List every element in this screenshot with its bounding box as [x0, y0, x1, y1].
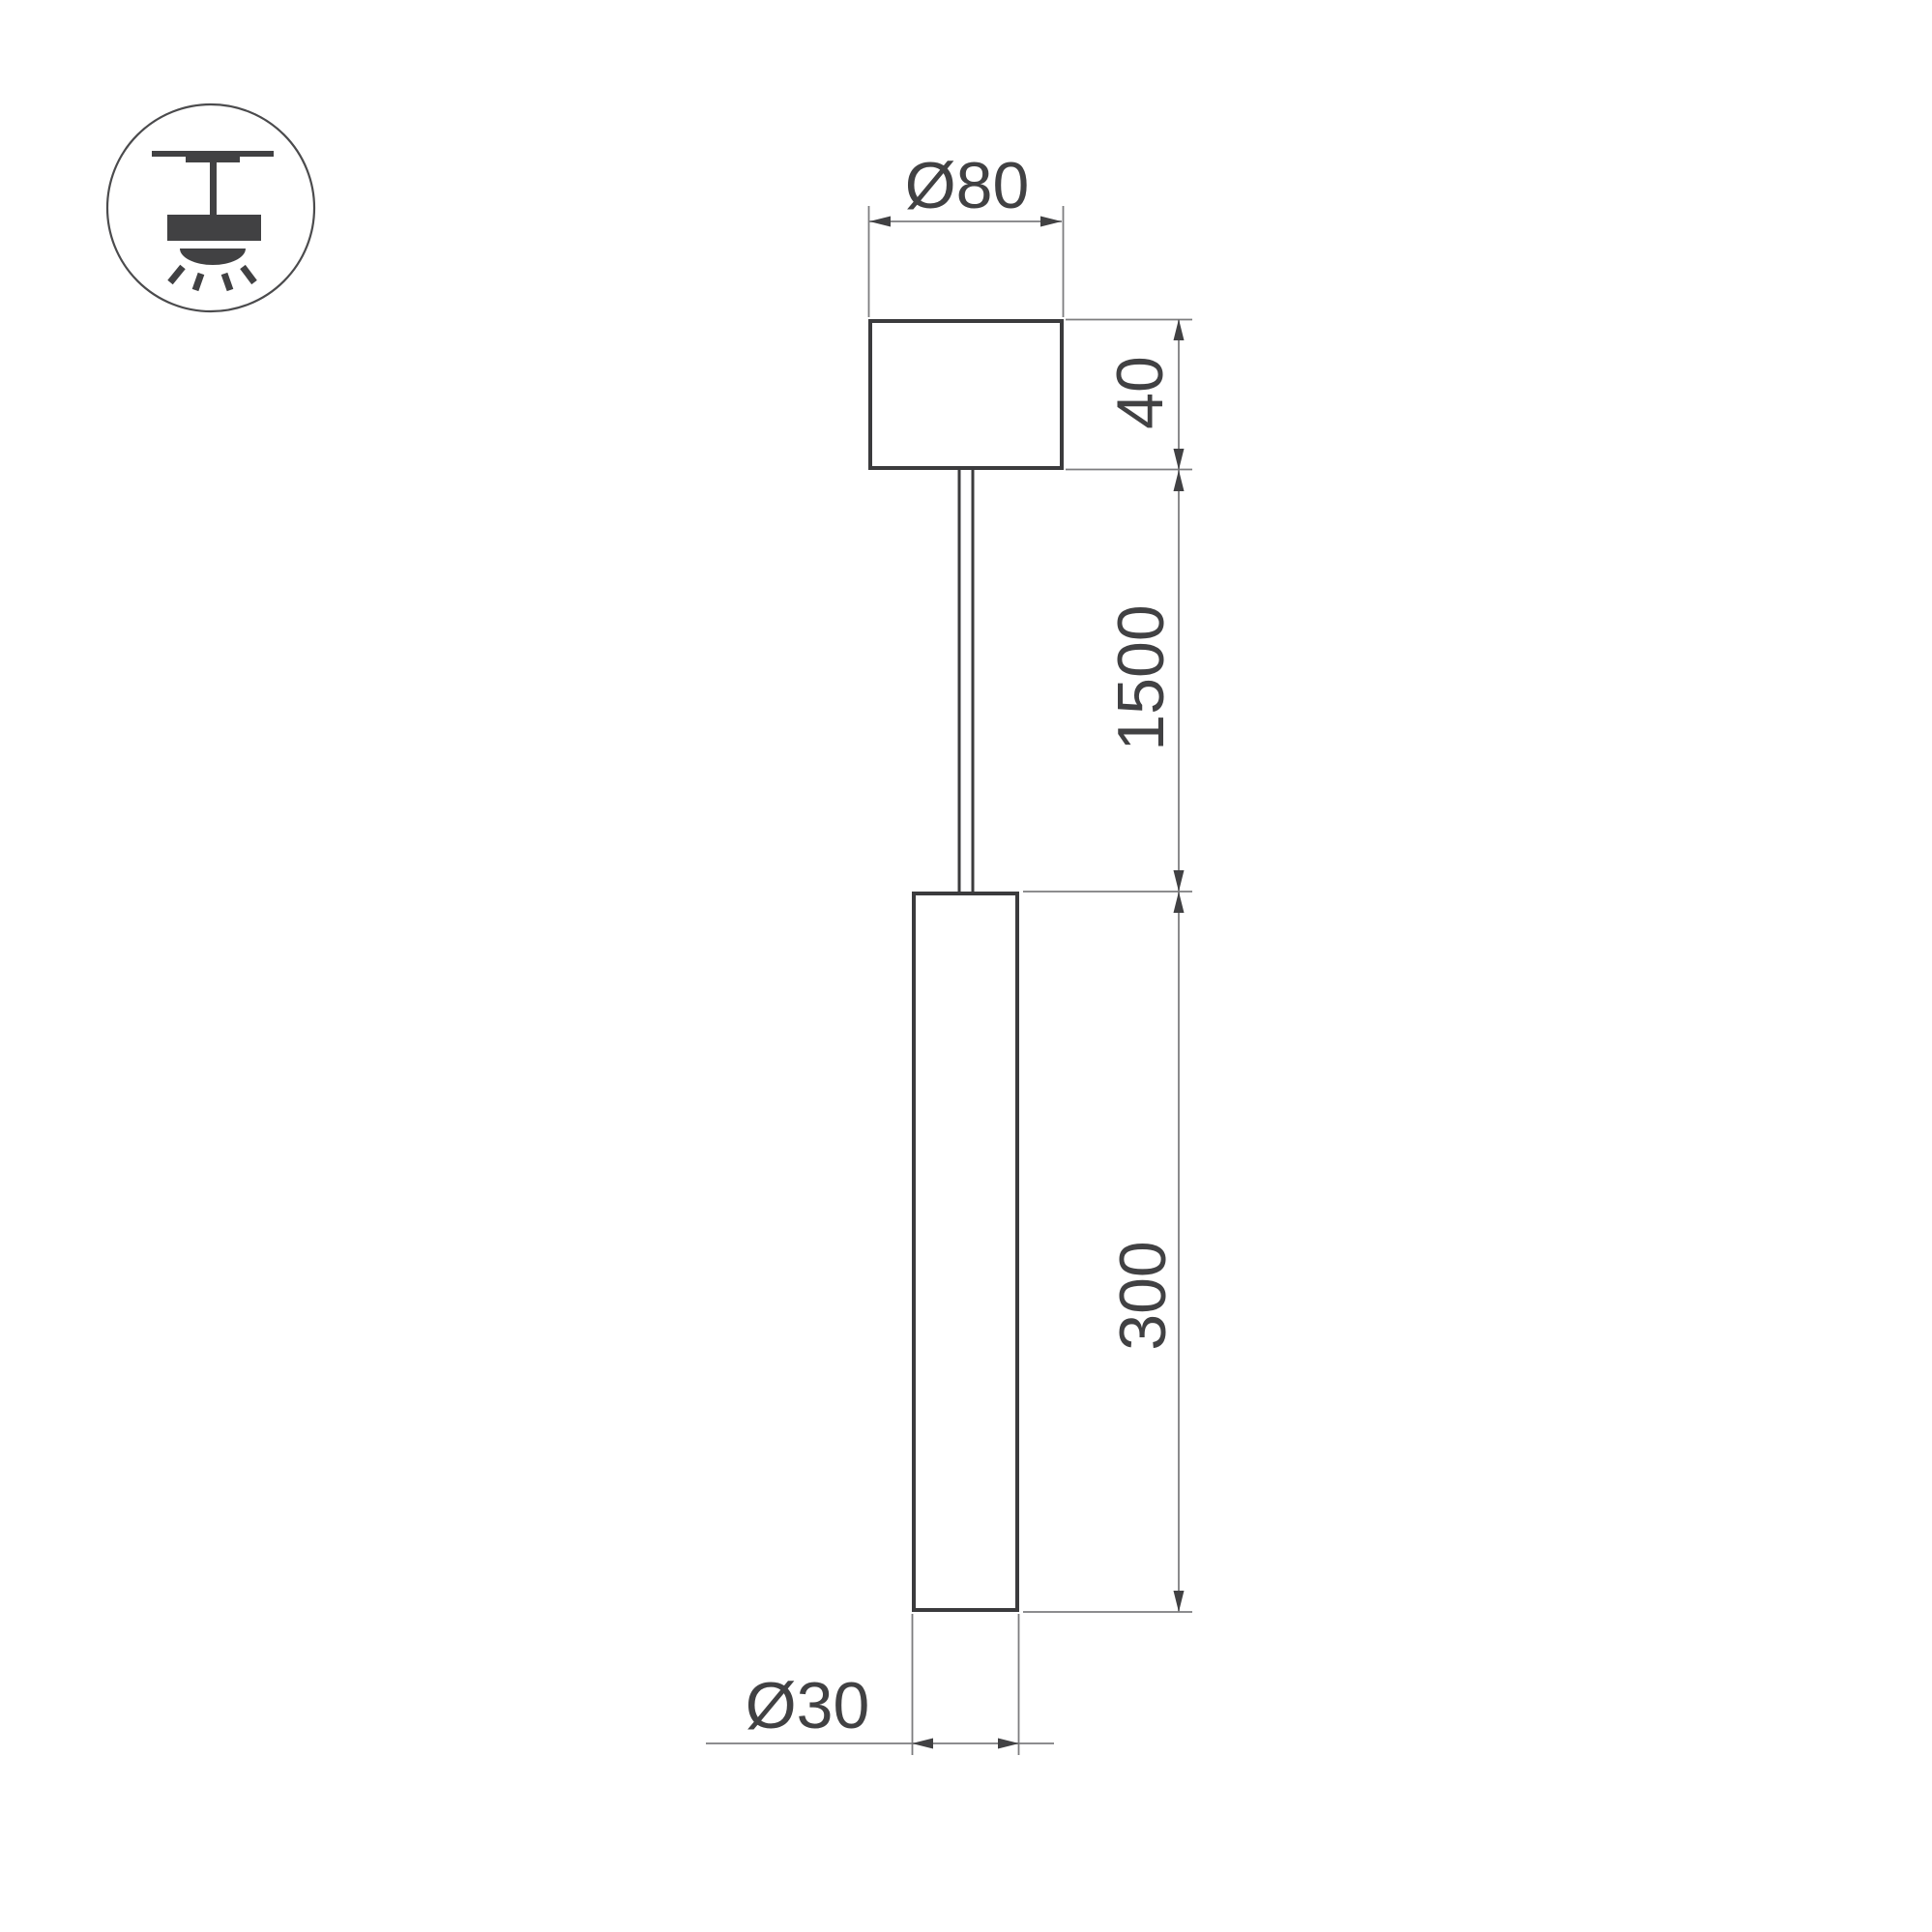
icon-ceiling-line: [152, 151, 274, 157]
dimension-tube-length: 300: [1023, 892, 1192, 1612]
pendant-mount-icon: [107, 104, 314, 311]
canopy-outline: [870, 321, 1062, 468]
dimension-tube-diameter: Ø30: [706, 1614, 1054, 1755]
dimension-label-canopy-diameter: Ø80: [905, 149, 1030, 222]
arrowhead-right: [998, 1739, 1019, 1749]
dimension-canopy-height: 40: [1066, 319, 1192, 470]
tube-outline: [914, 893, 1017, 1610]
luminaire-outline: [870, 321, 1062, 1610]
arrowhead-down: [1174, 1591, 1185, 1612]
dimension-label-tube-length: 300: [1106, 1241, 1180, 1350]
arrowhead-down: [1174, 449, 1185, 470]
dimension-label-suspension-length: 1500: [1104, 604, 1178, 750]
arrowhead-up: [1174, 319, 1185, 340]
arrowhead-up: [1174, 470, 1185, 491]
icon-track-mount: [186, 157, 240, 162]
dimension-label-canopy-height: 40: [1103, 356, 1177, 429]
technical-drawing: Ø80 40 1500 300: [0, 0, 1932, 1932]
dimension-suspension-length: 1500: [1023, 470, 1192, 892]
dimension-canopy-diameter: Ø80: [869, 149, 1064, 317]
icon-lamp-body: [167, 215, 261, 241]
arrowhead-left: [869, 217, 891, 227]
drawing-canvas: Ø80 40 1500 300: [0, 0, 1932, 1932]
arrowhead-left: [912, 1739, 933, 1749]
arrowhead-up: [1174, 892, 1185, 913]
icon-stem: [210, 162, 217, 215]
arrowhead-right: [1040, 217, 1062, 227]
arrowhead-down: [1174, 870, 1185, 892]
dimension-label-tube-diameter: Ø30: [746, 1669, 870, 1742]
